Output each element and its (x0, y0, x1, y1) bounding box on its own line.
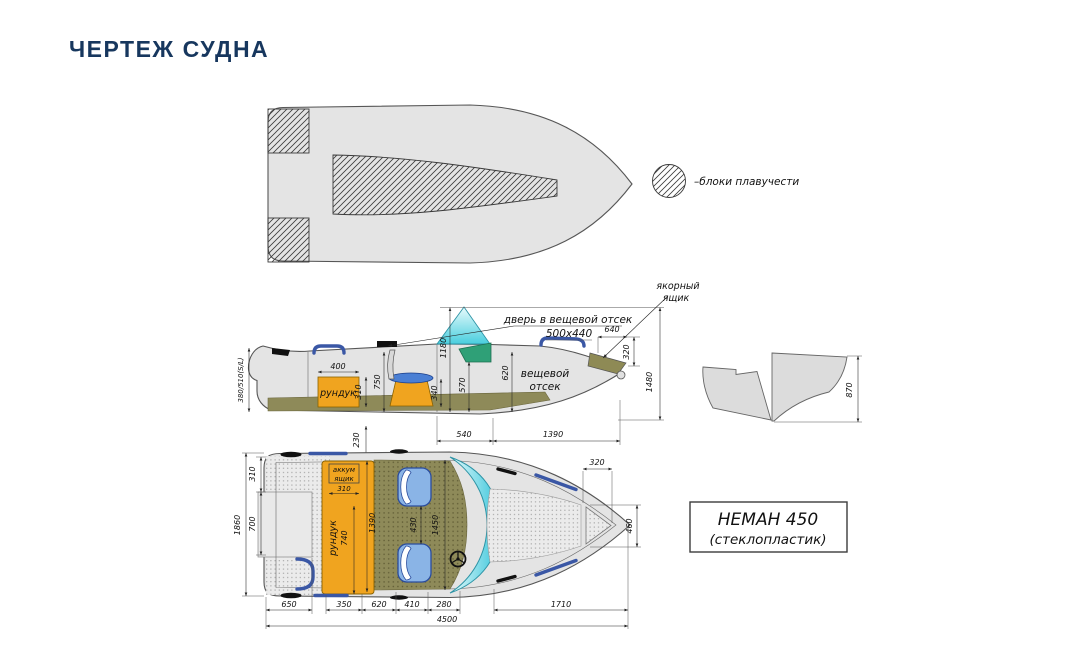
model-name: НЕМАН 450 (718, 510, 818, 530)
bow-eye (617, 371, 625, 379)
cleat-stern-bottom (281, 593, 302, 599)
dim-total-length: 4500 (437, 615, 457, 624)
seat-port (398, 468, 431, 506)
dim-1480: 1480 (645, 372, 654, 392)
dim-350: 350 (336, 600, 351, 609)
door-hinge (377, 341, 397, 347)
dim-1390-side: 1390 (543, 430, 563, 439)
plan-view: аккум ящик 310 рундук 740 (233, 449, 641, 629)
label-locker-side: рундук (319, 388, 356, 399)
label-storage-1: вещевой (521, 368, 570, 380)
dim-battery-width: 310 (337, 485, 351, 493)
transom-view: 870 (703, 353, 862, 422)
dim-1450: 1450 (431, 515, 440, 535)
dim-640: 640 (604, 325, 619, 334)
dim-540: 540 (456, 430, 471, 439)
dim-cockpit-width: 1390 (368, 513, 377, 533)
dim-280: 280 (436, 600, 451, 609)
label-battery-1: аккум (333, 466, 356, 474)
dim-870: 870 (845, 382, 854, 397)
dim-locker-width: 400 (330, 362, 345, 371)
cleat-mid-top (390, 449, 408, 453)
dim-locker-length: 740 (340, 530, 349, 545)
dim-650: 650 (281, 600, 296, 609)
dim-340: 340 (430, 385, 439, 400)
dim-beam: 1860 (233, 515, 242, 535)
transom-shape-left (703, 367, 771, 420)
dim-310-side-deck: 310 (248, 466, 257, 481)
label-anchor-box-1: якорный (656, 281, 699, 292)
cleat-stern-top (281, 452, 302, 458)
transom-shape-right (772, 353, 847, 421)
dim-320-side: 320 (622, 344, 631, 359)
seat-pedestal-side (390, 380, 433, 406)
dim-1180: 1180 (439, 338, 448, 358)
dim-bow-hatch-height: 460 (625, 518, 634, 533)
buoyancy-legend-icon (653, 165, 686, 198)
label-locker-plan: рундук (328, 520, 339, 557)
label-battery-2: ящик (334, 475, 354, 483)
dim-stern-height: 380/510(S/L) (237, 357, 245, 403)
dim-410: 410 (404, 600, 419, 609)
dim-seat-gap: 430 (409, 517, 418, 532)
side-view: 380/510(S/L) 400 310 750 1180 340 570 62… (237, 281, 700, 456)
seat-cushion-side (389, 373, 433, 383)
title-block: НЕМАН 450 (стеклопластик) (690, 502, 847, 552)
legend: –блоки плавучести (653, 165, 800, 198)
dim-bow-hatch-width: 320 (589, 458, 604, 467)
seat-starboard (398, 544, 431, 582)
dim-1710: 1710 (551, 600, 571, 609)
ship-drawing-canvas: –блоки плавучести 380/510(S/L) (0, 0, 1087, 655)
dim-700: 700 (248, 516, 257, 531)
motor-well (258, 492, 312, 557)
label-anchor-box-2: ящик (663, 293, 690, 304)
label-storage-2: отсек (529, 381, 561, 393)
dim-620-plan: 620 (371, 600, 386, 609)
buoyancy-block-stern-top (268, 109, 309, 153)
model-material: (стеклопластик) (709, 532, 826, 548)
dim-620-side: 620 (501, 365, 510, 380)
buoyancy-block-stern-bottom (268, 218, 309, 262)
legend-buoyancy-label: –блоки плавучести (694, 176, 799, 188)
top-view (268, 105, 632, 263)
label-door-size: 500х440 (546, 328, 593, 340)
dim-570: 570 (458, 377, 467, 392)
dim-230: 230 (352, 432, 361, 447)
dim-750: 750 (373, 374, 382, 389)
